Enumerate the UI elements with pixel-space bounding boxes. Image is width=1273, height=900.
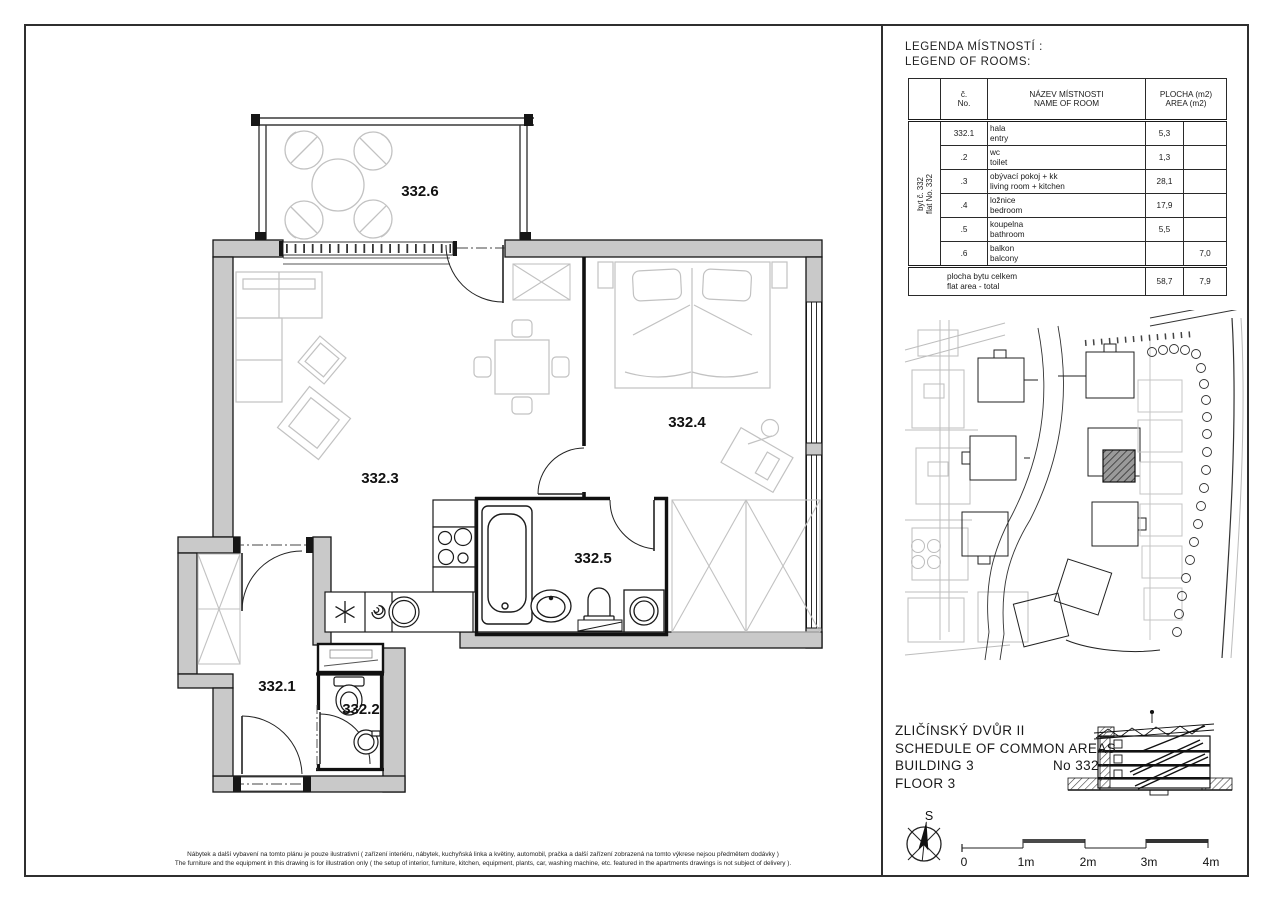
cell-area2: 7,0	[1184, 242, 1227, 267]
room-label-bathroom: 332.5	[574, 550, 612, 567]
site-plan	[905, 300, 1245, 660]
header-no: č.No.	[941, 79, 988, 121]
sofa-icon	[236, 272, 322, 402]
floor-label: FLOOR 3	[895, 775, 1116, 793]
drawing-title: SCHEDULE OF COMMON AREAS	[895, 740, 1116, 758]
bedroom-windows	[807, 302, 822, 628]
header-area: PLOCHA (m2)AREA (m2)	[1146, 79, 1227, 121]
balcony-chair-icon	[285, 131, 323, 169]
balcony-chair-icon	[285, 201, 323, 239]
cell-no: .5	[941, 218, 988, 242]
cell-name: ložnicebedroom	[988, 194, 1146, 218]
scale-label-3m: 3m	[1141, 855, 1158, 869]
toilet-icon	[584, 588, 614, 623]
bathroom-door	[610, 500, 654, 551]
drawing-sheet: 332.6 332.3 332.4 332.5 332.1 332.2	[0, 0, 1273, 900]
cell-area2	[1184, 218, 1227, 242]
table-header-row: č.No. NÁZEV MÍSTNOSTINAME OF ROOM PLOCHA…	[909, 79, 1227, 121]
armchair-icon	[298, 336, 346, 384]
title-block: ZLIČÍNSKÝ DVŮR II SCHEDULE OF COMMON ARE…	[895, 722, 1116, 792]
north-arrow: S	[907, 809, 941, 861]
total-area: 58,7	[1146, 267, 1184, 296]
apartment-plan: 332.6 332.3 332.4 332.5 332.1 332.2	[178, 114, 822, 792]
table-total-row: plocha bytu celkemflat area - total 58,7…	[909, 267, 1227, 296]
desk-icon	[721, 420, 793, 493]
room-label-bedroom: 332.4	[668, 414, 706, 431]
entrance-door	[233, 716, 311, 792]
entry-inner-door	[233, 537, 313, 611]
scale-label-0: 0	[961, 855, 968, 869]
cell-area2	[1184, 170, 1227, 194]
cell-name: wctoilet	[988, 146, 1146, 170]
wc-niche	[318, 644, 383, 672]
balcony-chair-icon	[354, 132, 392, 170]
site-trees	[1148, 345, 1212, 637]
cell-no: .2	[941, 146, 988, 170]
kitchen-sink-icon	[389, 597, 419, 627]
balcony-chair-icon	[354, 200, 392, 238]
bathtub-icon	[482, 506, 532, 624]
total-label: plocha bytu celkemflat area - total	[909, 267, 1146, 296]
cell-area: 5,5	[1146, 218, 1184, 242]
project-title: ZLIČÍNSKÝ DVŮR II	[895, 722, 1116, 740]
legend-title-en: LEGEND OF ROOMS:	[905, 55, 1043, 70]
room-label-entry: 332.1	[258, 678, 296, 695]
coffee-table-icon	[278, 387, 351, 460]
cell-area	[1146, 242, 1184, 267]
flat-number: No 332	[1053, 757, 1099, 775]
site-context-buildings	[905, 320, 1028, 655]
bath-shelf-icon	[578, 620, 622, 631]
header-flat-cell	[909, 79, 941, 121]
room-label-balcony: 332.6	[401, 183, 439, 200]
room-label-living: 332.3	[361, 470, 399, 487]
disclaimer-cs: Nábytek a další vybavení na tomto plánu …	[130, 850, 836, 859]
table-row: byt č. 332 flat No. 332 332.1 halaentry …	[909, 121, 1227, 146]
table-row: .4 ložnicebedroom 17,9	[909, 194, 1227, 218]
disclaimer: Nábytek a další vybavení na tomto plánu …	[130, 850, 836, 868]
legend-title: LEGENDA MÍSTNOSTÍ : LEGEND OF ROOMS:	[905, 40, 1043, 70]
highlighted-building	[1103, 450, 1135, 482]
cell-area: 5,3	[1146, 121, 1184, 146]
dining-set-icon	[474, 320, 569, 414]
table-row: .6 balkonbalcony 7,0	[909, 242, 1227, 267]
bed-icon	[598, 262, 787, 388]
cell-area: 28,1	[1146, 170, 1184, 194]
cell-name: koupelnabathroom	[988, 218, 1146, 242]
balcony-window	[279, 241, 457, 264]
site-buildings	[962, 344, 1160, 652]
cell-name: halaentry	[988, 121, 1146, 146]
flat-number-label: byt č. 332 flat No. 332	[909, 121, 941, 267]
legend-title-cs: LEGENDA MÍSTNOSTÍ :	[905, 40, 1043, 55]
building-label: BUILDING 3	[895, 758, 974, 773]
washbasin-icon	[531, 590, 571, 622]
cell-area2	[1184, 121, 1227, 146]
legend-of-rooms-table: č.No. NÁZEV MÍSTNOSTINAME OF ROOM PLOCHA…	[908, 78, 1227, 296]
total-area2: 7,9	[1184, 267, 1227, 296]
cell-area: 1,3	[1146, 146, 1184, 170]
cell-no: .6	[941, 242, 988, 267]
balcony-table-icon	[285, 131, 392, 239]
washing-machine-icon	[624, 590, 664, 632]
room-label-wc: 332.2	[342, 701, 380, 718]
cell-name: obývací pokoj + kkliving room + kitchen	[988, 170, 1146, 194]
cell-no: 332.1	[941, 121, 988, 146]
cell-area2	[1184, 194, 1227, 218]
cell-name: balkonbalcony	[988, 242, 1146, 267]
cell-area2	[1184, 146, 1227, 170]
header-name: NÁZEV MÍSTNOSTINAME OF ROOM	[988, 79, 1146, 121]
table-row: .2 wctoilet 1,3	[909, 146, 1227, 170]
cell-no: .4	[941, 194, 988, 218]
scale-label-2m: 2m	[1080, 855, 1097, 869]
scale-label-1m: 1m	[1018, 855, 1035, 869]
cell-area: 17,9	[1146, 194, 1184, 218]
entry-wardrobe-icon	[198, 554, 240, 664]
north-label: S	[925, 809, 933, 823]
cell-no: .3	[941, 170, 988, 194]
cabinet-icon	[513, 264, 570, 300]
table-row: .5 koupelnabathroom 5,5	[909, 218, 1227, 242]
table-row: .3 obývací pokoj + kkliving room + kitch…	[909, 170, 1227, 194]
wardrobe-icon	[672, 500, 820, 632]
disclaimer-en: The furniture and the equipment in this …	[130, 859, 836, 868]
scale-label-4m: 4m	[1203, 855, 1220, 869]
site-east-parcels	[1138, 340, 1182, 640]
scale-bar: 0 1m 2m 3m 4m	[961, 839, 1220, 869]
